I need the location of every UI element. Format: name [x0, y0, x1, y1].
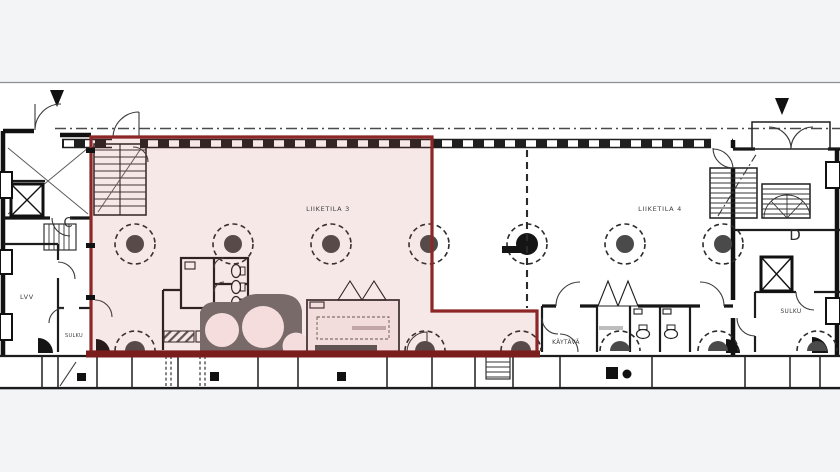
unit3-label: LIIKETILA 3 [306, 205, 350, 213]
window [826, 162, 840, 188]
facade-post [606, 367, 618, 379]
door-opening [64, 306, 79, 310]
stairwell-c-label: C [63, 216, 72, 231]
door-opening [711, 138, 732, 149]
room-label-sulku-right: SULKU [780, 309, 801, 315]
room-label-lvv: LVV [20, 293, 34, 301]
door-opening [56, 260, 60, 278]
window [0, 314, 12, 340]
floor-plan: LIIKETILA 3 LIIKETILA 4 LVV SULKU KÄYTÄV… [0, 0, 840, 472]
elevator [11, 184, 43, 216]
facade-dot [623, 370, 632, 379]
elevator [761, 257, 792, 291]
small-room-label-illegible [599, 326, 623, 330]
facade-post [337, 372, 346, 381]
unit4-label: LIIKETILA 4 [638, 205, 682, 213]
window [826, 298, 840, 324]
window [0, 250, 12, 274]
stairwell-d-label: D [789, 226, 801, 244]
column-duct [502, 246, 528, 253]
window [0, 172, 12, 198]
room-label-kaytava: KÄYTÄVÄ [552, 339, 580, 346]
room-label-sulku-left: SULKU [65, 333, 83, 339]
facade-post [210, 372, 219, 381]
facade-post [77, 373, 86, 381]
